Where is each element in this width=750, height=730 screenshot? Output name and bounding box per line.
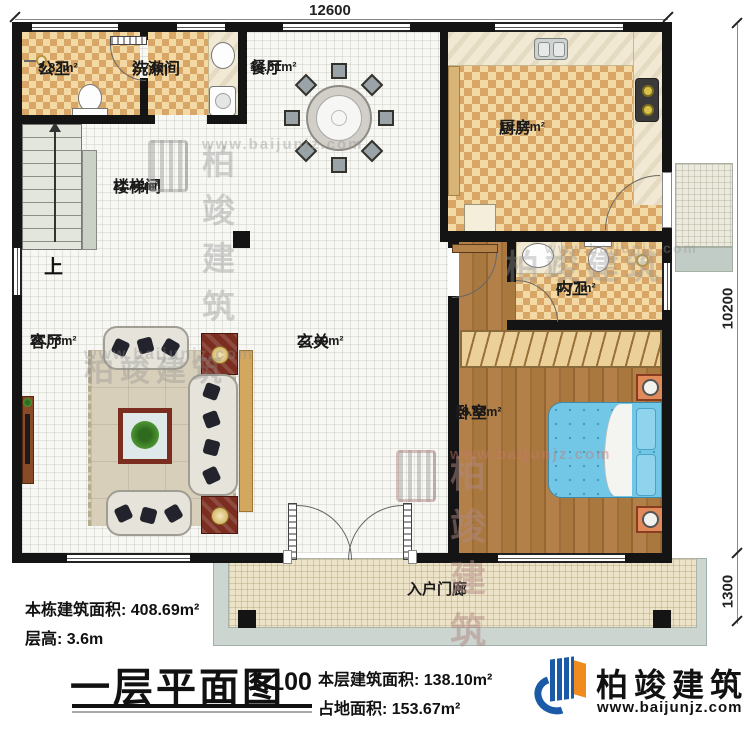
window <box>32 22 118 32</box>
entry-door-jamb-left <box>283 550 292 564</box>
side-landing <box>675 163 733 247</box>
wall <box>190 553 285 563</box>
window <box>283 22 410 32</box>
wall <box>440 231 672 242</box>
floor-height-text: 层高: 3.6m <box>25 625 103 649</box>
floor-plan-sheet: 公卫3.82m² 洗漱间2.74m² 餐厅14.61m² 厨房15.11m² 楼… <box>0 0 750 730</box>
wall <box>140 78 148 115</box>
tv-icon <box>25 414 30 464</box>
kitchen-sink-icon <box>534 38 568 60</box>
wall <box>448 296 459 553</box>
dining-table-center <box>331 110 347 126</box>
stairs-flight <box>22 124 82 250</box>
porch-column-right <box>653 610 671 628</box>
sofa-bottom <box>106 490 192 536</box>
dining-chair <box>378 110 394 126</box>
window <box>662 263 672 310</box>
dining-chair <box>284 110 300 126</box>
brand-website: www.baijunjz.com <box>597 699 742 716</box>
bedroom-door-leaf <box>452 244 498 253</box>
wall <box>507 242 516 282</box>
wall <box>12 115 155 124</box>
dimension-tick <box>9 11 20 22</box>
window <box>495 22 623 32</box>
side-table-top <box>201 333 238 375</box>
side-landing-step <box>675 247 733 272</box>
dining-chair <box>331 63 347 79</box>
floor-area-text: 本层建筑面积: 138.10m² <box>318 666 492 690</box>
wall <box>440 32 448 242</box>
washing-machine-icon <box>209 86 236 116</box>
entry-door-jamb-right <box>408 550 417 564</box>
wall <box>662 310 672 563</box>
wall <box>410 22 495 32</box>
wall <box>12 295 22 563</box>
wardrobe-icon <box>460 330 662 368</box>
structural-column <box>233 231 250 248</box>
wall <box>207 115 240 124</box>
tv-plant-icon <box>23 398 32 407</box>
plan-scale: 1:100 <box>248 668 312 697</box>
wall <box>238 32 247 124</box>
bed-pillow-2 <box>636 454 656 496</box>
dimension-line-right <box>737 24 738 624</box>
brand-logo-icon <box>534 656 592 718</box>
porch-column-left <box>238 610 256 628</box>
title-underline-2 <box>72 711 312 713</box>
stairs-arrow-line <box>54 130 56 242</box>
wall <box>225 22 283 32</box>
window <box>67 553 190 563</box>
fridge-icon <box>464 204 496 232</box>
floor-drain-icon <box>636 254 649 267</box>
washroom-sink-icon <box>211 42 235 69</box>
bed-pillow-1 <box>636 408 656 450</box>
plant-icon <box>131 421 159 449</box>
building-total-area-text: 本栋建筑面积: 408.69m² <box>25 596 199 620</box>
kitchen-tall-cabinet <box>448 66 460 196</box>
public-bath-door-leaf <box>110 36 147 45</box>
dimension-line-top <box>15 19 668 20</box>
window <box>498 553 625 563</box>
stairs-up-label: 上 <box>44 252 74 279</box>
land-area-text: 占地面积: 153.67m² <box>318 695 460 719</box>
window <box>177 22 225 32</box>
wall <box>12 553 67 563</box>
wall <box>415 553 498 563</box>
wall <box>118 22 177 32</box>
console-table <box>239 350 253 512</box>
dimension-tick <box>662 11 673 22</box>
ensuite-toilet-icon <box>588 247 609 272</box>
kitchen-side-door-opening <box>662 172 672 228</box>
wall <box>12 22 22 248</box>
sofa-top <box>103 326 189 370</box>
side-table-bottom <box>201 496 238 534</box>
dimension-top: 12600 <box>295 2 365 19</box>
wall <box>662 22 672 172</box>
dimension-right-upper: 10200 <box>720 279 737 339</box>
sofa-right <box>188 374 238 496</box>
dimension-right-lower: 1300 <box>720 567 737 617</box>
window <box>12 248 22 295</box>
ensuite-sink-icon <box>522 243 554 268</box>
title-underline <box>72 704 312 708</box>
stairs-landing <box>82 150 97 250</box>
dining-chair <box>331 157 347 173</box>
stove-icon <box>635 78 659 122</box>
